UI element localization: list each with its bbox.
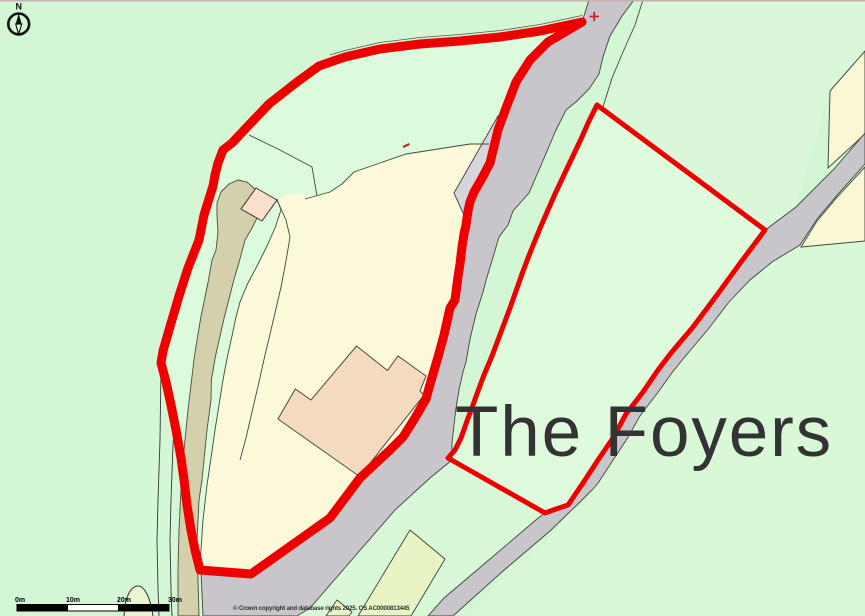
svg-text:N: N [15, 1, 22, 11]
svg-text:10m: 10m [66, 597, 80, 604]
svg-text:© Crown copyright and database: © Crown copyright and database rights 20… [233, 604, 410, 612]
svg-text:0m: 0m [15, 597, 25, 604]
svg-text:30m: 30m [168, 597, 182, 604]
svg-text:20m: 20m [117, 597, 131, 604]
svg-text:The Foyers: The Foyers [455, 393, 833, 472]
